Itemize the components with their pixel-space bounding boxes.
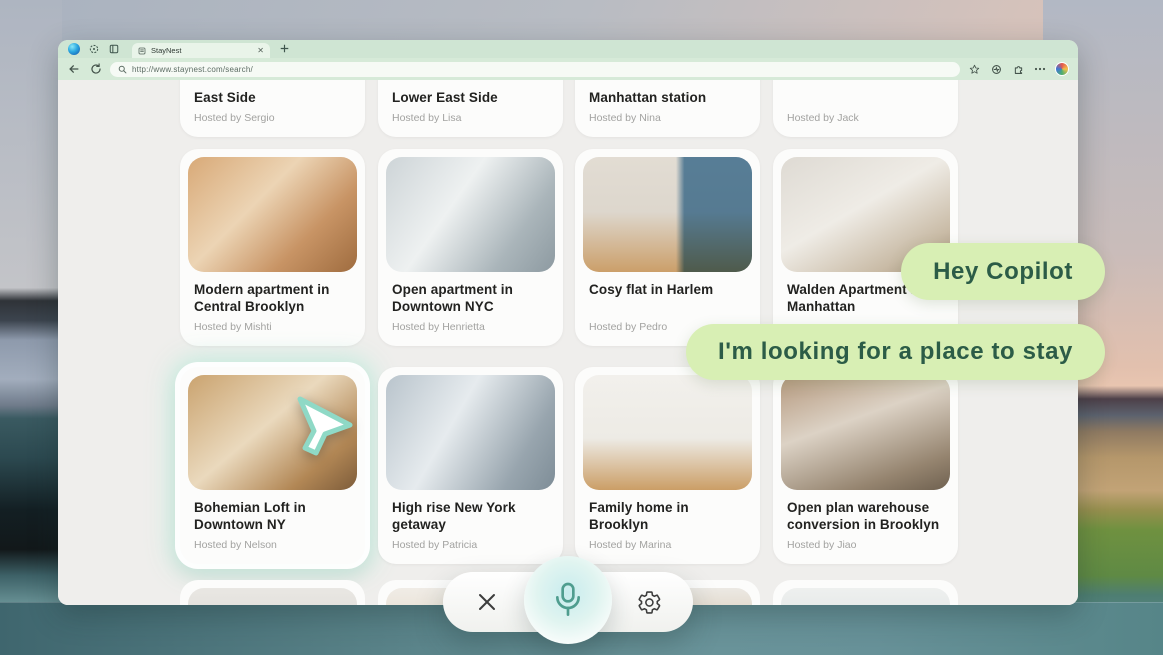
listing-card[interactable]: Hosted by Jack: [773, 80, 958, 137]
listing-title: Open plan warehouse conversion in Brookl…: [787, 499, 944, 535]
listing-photo: [583, 157, 752, 272]
listing-title: High rise New York getaway: [392, 499, 549, 535]
listing-photo: [188, 157, 357, 272]
browser-essentials-icon[interactable]: [988, 61, 1004, 77]
microphone-button[interactable]: [524, 556, 612, 644]
listing-photo: [781, 588, 950, 605]
listing-title: Lower East Side: [392, 80, 549, 108]
listing-photo: [781, 375, 950, 490]
speech-text: Hey Copilot: [933, 258, 1073, 286]
listing-title: Manhattan station: [589, 80, 746, 108]
extensions-icon[interactable]: [1010, 61, 1026, 77]
listing-title: Bohemian Loft in Downtown NY: [194, 499, 351, 535]
listing-card[interactable]: East Side Hosted by Sergio: [180, 80, 365, 137]
tab-strip: StayNest ✕: [58, 40, 1078, 58]
listing-card[interactable]: [773, 580, 958, 605]
browser-window: StayNest ✕ http://www.staynest.com/searc…: [58, 40, 1078, 605]
edge-logo-icon[interactable]: [66, 41, 82, 57]
listing-title: Cosy flat in Harlem: [589, 281, 746, 317]
microphone-icon: [552, 581, 584, 619]
browser-toolbar: http://www.staynest.com/search/: [58, 58, 1078, 80]
favorites-star-icon[interactable]: [966, 61, 982, 77]
profile-avatar[interactable]: [1054, 61, 1070, 77]
listing-host: Hosted by Jack: [787, 112, 944, 124]
listing-card[interactable]: Cosy flat in Harlem Hosted by Pedro: [575, 149, 760, 346]
tab-title: StayNest: [151, 46, 252, 55]
listing-card[interactable]: [180, 580, 365, 605]
listing-host: Hosted by Mishti: [194, 321, 351, 333]
listing-host: Hosted by Nelson: [194, 539, 351, 551]
listing-card[interactable]: Lower East Side Hosted by Lisa: [378, 80, 563, 137]
url-text: http://www.staynest.com/search/: [132, 65, 253, 74]
refresh-icon[interactable]: [88, 61, 104, 77]
copilot-speech-bubble: Hey Copilot: [901, 243, 1105, 300]
url-input[interactable]: http://www.staynest.com/search/: [110, 62, 960, 77]
tab-close-icon[interactable]: ✕: [257, 47, 264, 55]
settings-gear-icon[interactable]: [635, 588, 663, 616]
close-icon[interactable]: [473, 588, 501, 616]
listing-photo: [188, 588, 357, 605]
search-icon: [118, 65, 127, 74]
listing-photo: [583, 375, 752, 490]
listing-photo: [386, 375, 555, 490]
vertical-tabs-icon[interactable]: [106, 41, 122, 57]
listing-host: Hosted by Lisa: [392, 112, 549, 124]
cursor-icon: [292, 393, 354, 464]
listing-title: Family home in Brooklyn: [589, 499, 746, 535]
more-menu-icon[interactable]: [1032, 61, 1048, 77]
listing-title: East Side: [194, 80, 351, 108]
desktop-wallpaper-mountains: [0, 0, 62, 654]
listing-host: Hosted by Patricia: [392, 539, 549, 551]
listing-card[interactable]: Manhattan station Hosted by Nina: [575, 80, 760, 137]
listing-host: Hosted by Nina: [589, 112, 746, 124]
listing-card[interactable]: Open apartment in Downtown NYC Hosted by…: [378, 149, 563, 346]
browser-tab-staynest[interactable]: StayNest ✕: [132, 43, 270, 58]
listing-photo: [386, 157, 555, 272]
listing-card[interactable]: High rise New York getaway Hosted by Pat…: [378, 367, 563, 564]
tab-favicon-icon: [138, 47, 146, 55]
listing-card[interactable]: Open plan warehouse conversion in Brookl…: [773, 367, 958, 564]
listing-host: Hosted by Henrietta: [392, 321, 549, 333]
listing-card-selected[interactable]: Bohemian Loft in Downtown NY Hosted by N…: [180, 367, 365, 564]
listing-title: Open apartment in Downtown NYC: [392, 281, 549, 317]
listing-host: Hosted by Marina: [589, 539, 746, 551]
copilot-speech-bubble: I'm looking for a place to stay: [686, 324, 1105, 380]
back-icon[interactable]: [66, 61, 82, 77]
listing-card[interactable]: Family home in Brooklyn Hosted by Marina: [575, 367, 760, 564]
listing-title: [787, 80, 944, 108]
listing-host: Hosted by Sergio: [194, 112, 351, 124]
tab-actions-icon[interactable]: [86, 41, 102, 57]
listing-host: Hosted by Jiao: [787, 539, 944, 551]
listing-title: Modern apartment in Central Brooklyn: [194, 281, 351, 317]
new-tab-icon[interactable]: [276, 40, 292, 56]
speech-text: I'm looking for a place to stay: [718, 338, 1073, 366]
listing-card[interactable]: Modern apartment in Central Brooklyn Hos…: [180, 149, 365, 346]
